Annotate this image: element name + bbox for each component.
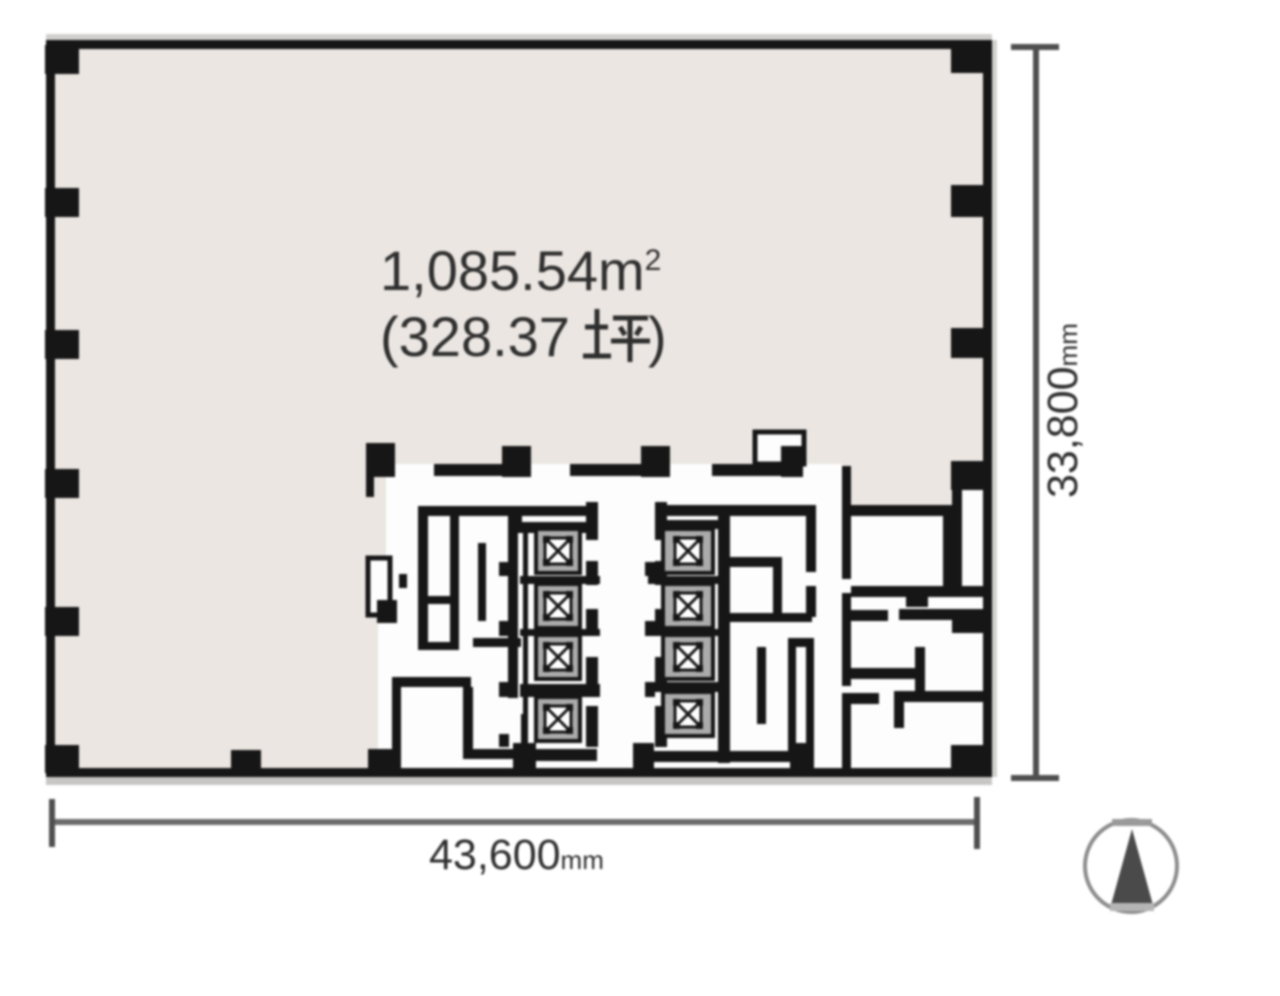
svg-text:): ) (648, 305, 667, 368)
svg-text:1,085.54m2: 1,085.54m2 (380, 239, 661, 302)
svg-text:(328.37: (328.37 (380, 305, 570, 368)
